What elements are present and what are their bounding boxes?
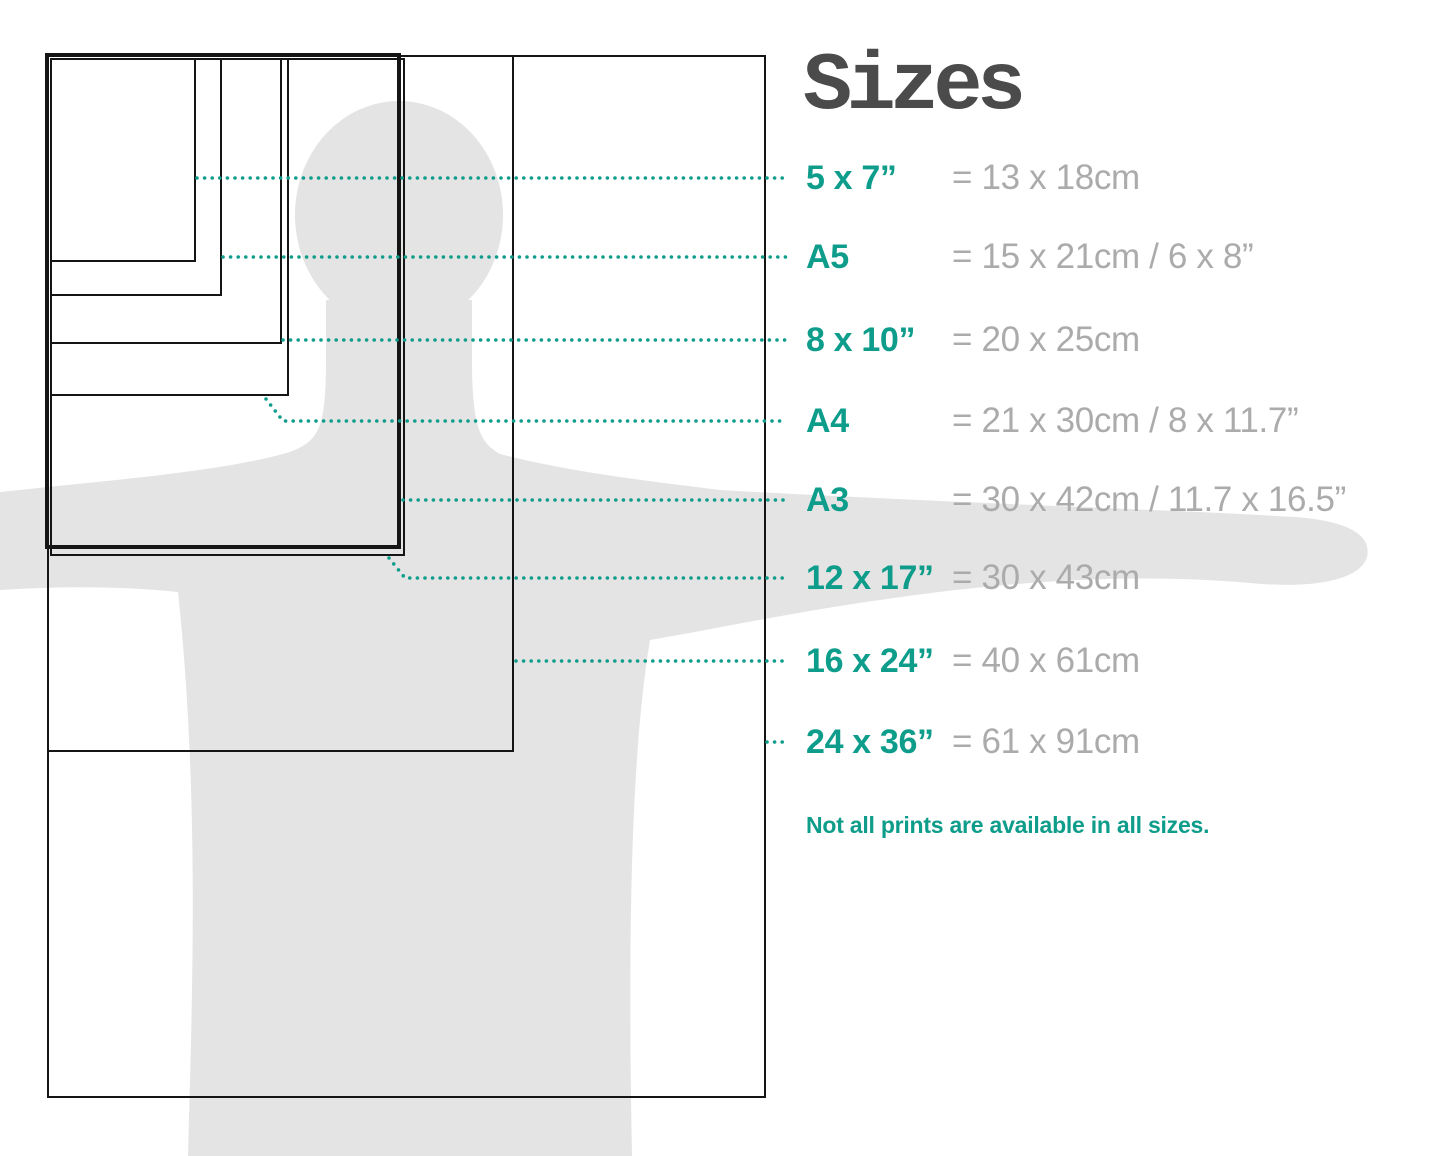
leader-line-a4: [266, 399, 786, 421]
size-value-metric: = 40 x 61cm: [942, 641, 1140, 681]
print-size-guide: Sizes 5 x 7” = 13 x 18cm A5 = 15 x 21cm …: [0, 0, 1445, 1156]
size-value-metric: = 13 x 18cm: [942, 158, 1140, 198]
size-row-12x17: 12 x 17” = 30 x 43cm: [806, 552, 1140, 604]
size-row-a4: A4 = 21 x 30cm / 8 x 11.7”: [806, 395, 1298, 447]
size-row-5x7: 5 x 7” = 13 x 18cm: [806, 152, 1140, 204]
size-value-metric: = 15 x 21cm / 6 x 8”: [942, 237, 1253, 277]
size-value-metric: = 20 x 25cm: [942, 320, 1140, 360]
size-row-a5: A5 = 15 x 21cm / 6 x 8”: [806, 231, 1253, 283]
size-label: 16 x 24”: [806, 642, 942, 681]
size-value-metric: = 61 x 91cm: [942, 722, 1140, 762]
size-row-8x10: 8 x 10” = 20 x 25cm: [806, 314, 1140, 366]
size-label: A4: [806, 402, 942, 441]
availability-note: Not all prints are available in all size…: [806, 812, 1209, 839]
size-row-16x24: 16 x 24” = 40 x 61cm: [806, 635, 1140, 687]
page-title: Sizes: [803, 46, 1020, 128]
size-row-a3: A3 = 30 x 42cm / 11.7 x 16.5”: [806, 474, 1346, 526]
size-value-metric: = 21 x 30cm / 8 x 11.7”: [942, 401, 1298, 441]
size-value-metric: = 30 x 42cm / 11.7 x 16.5”: [942, 480, 1346, 520]
size-label: A3: [806, 481, 942, 520]
leader-line-12x17: [389, 558, 786, 578]
size-label: A5: [806, 238, 942, 277]
size-row-24x36: 24 x 36” = 61 x 91cm: [806, 716, 1140, 768]
size-label: 24 x 36”: [806, 723, 942, 762]
size-label: 8 x 10”: [806, 321, 942, 360]
leader-lines: [0, 0, 1445, 1156]
size-label: 12 x 17”: [806, 559, 942, 598]
size-label: 5 x 7”: [806, 159, 942, 198]
size-value-metric: = 30 x 43cm: [942, 558, 1140, 598]
